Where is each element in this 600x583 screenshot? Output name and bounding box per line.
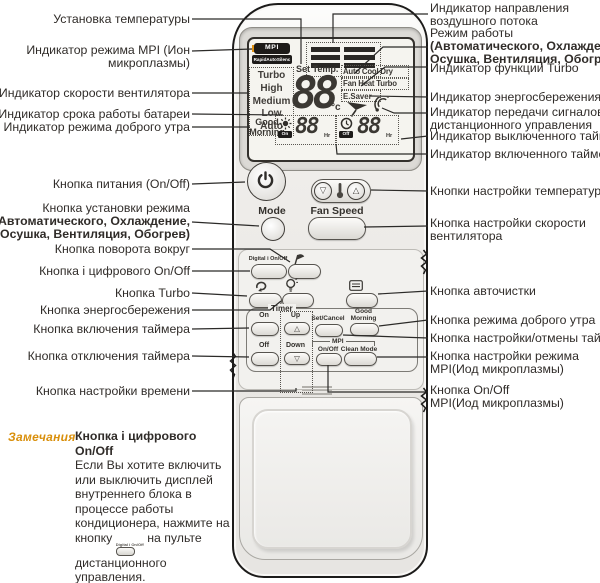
timer-off-button-label: Off (251, 342, 277, 349)
set-cancel-button[interactable] (315, 324, 343, 337)
timer-off-value: 88 (357, 116, 380, 138)
mode-button-label: Mode (252, 205, 292, 217)
mpi-onoff-button[interactable] (316, 353, 342, 366)
callout-mode-button: Кнопка установки режима(Автоматического,… (0, 202, 190, 241)
callout-digital-i-button: Кнопка i цифрового On/Off (39, 265, 190, 278)
note-title: Кнопка i цифрового On/Off (75, 429, 233, 458)
callout-energy-saver-button: Кнопка энергосбережения (40, 304, 190, 317)
callout-turbo-indicator: Индикатор функции Turbo (430, 62, 579, 75)
timer-on-button[interactable] (251, 322, 279, 336)
manual-diagram-page: MPI RapidAutoSilenc Turbo High Medium Lo… (0, 0, 600, 583)
set-cancel-button-label: Set/Cancel (309, 315, 347, 322)
mpi-indicator-badge: MPI (254, 43, 290, 54)
clean-mode-button[interactable] (344, 352, 377, 366)
temp-down-icon: ▽ (315, 185, 331, 196)
callout-set-temperature: Установка температуры (53, 13, 190, 26)
turbo-icon (255, 280, 268, 293)
timer-on-badge: On (278, 131, 292, 138)
callout-set-cancel-button: Кнопка настройки/отмены таймера (430, 332, 600, 345)
timer-up-button-label: Up (283, 312, 308, 319)
timer-on-value: 88 (295, 116, 318, 138)
fan-speed-button-label: Fan Speed (308, 205, 366, 217)
callout-mpi-clean-mode-button: Кнопка настройки режимаMPI(Иод микроплаз… (430, 350, 579, 376)
callout-swing-button: Кнопка поворота вокруг (55, 243, 190, 256)
mode-indicator-row: Auto Cool Dry (343, 67, 409, 76)
fan-speed-indicator: Turbo (250, 70, 293, 83)
mpi-group-label: MPI (330, 338, 346, 345)
callout-airflow-indicator: Индикатор направлениявоздушного потока (430, 2, 569, 28)
thermometer-icon (336, 182, 344, 199)
callout-auto-clean-button: Кнопка авточистки (430, 285, 536, 298)
battery-life-icon (279, 117, 292, 130)
digital-i-onoff-button[interactable] (251, 264, 287, 279)
timer-clock-icon (340, 117, 353, 130)
temp-up-button[interactable]: △ (347, 182, 365, 200)
good-morning-button-line1: Good (347, 308, 380, 315)
down-triangle-icon: ▽ (285, 354, 309, 363)
temperature-unit: °c (331, 102, 341, 113)
mode-indicator-box: Auto Cool Dry (341, 65, 409, 78)
timer-off-button[interactable] (251, 352, 279, 366)
callout-mpi-indicator: Индикатор режима MPI (Ионмикроплазмы) (26, 44, 190, 70)
callout-timer-off-button: Кнопка отключения таймера (28, 350, 190, 363)
auto-clean-icon (349, 280, 363, 291)
note-inline-button: Digital i On/Off (116, 543, 144, 556)
fan-speed-indicator: High (250, 83, 293, 96)
timer-on-unit: Hr (324, 133, 330, 139)
auto-clean-button[interactable] (346, 293, 378, 308)
callout-good-morning-button: Кнопка режима доброго утра (430, 314, 595, 327)
temp-down-button[interactable]: ▽ (314, 182, 332, 200)
mode-button[interactable] (261, 217, 285, 241)
turbo-indicator-row: Fan Heat Turbo (343, 79, 409, 88)
turbo-indicator-box: Fan Heat Turbo (341, 78, 409, 91)
temperature-value: 88 (291, 74, 334, 114)
airflow-bar (344, 47, 375, 52)
timer-down-button[interactable]: ▽ (284, 352, 310, 365)
timer-off-unit: Hr (386, 133, 392, 139)
digital-i-onoff-mini-label: Digital i On/Off (116, 543, 144, 547)
rapid-auto-silence-badge: RapidAutoSilenc (252, 55, 292, 64)
timer-off-badge: Off (339, 131, 353, 138)
up-triangle-icon: △ (285, 324, 309, 333)
digital-i-onoff-mini-pill (116, 547, 135, 556)
callout-good-morning-indicator: Индикатор режима доброго утра (4, 121, 191, 134)
callout-timer-off-indicator: Индикатор выключенного таймера (430, 130, 600, 143)
good-morning-button[interactable] (350, 323, 379, 336)
power-button[interactable] (247, 162, 286, 201)
callout-energy-saver-indicator: Индикатор энергосбережения (430, 91, 600, 104)
timer-up-button[interactable]: △ (284, 322, 310, 335)
callout-timer-on-indicator: Индикатор включенного таймера (430, 148, 600, 161)
callout-mpi-onoff-button: Кнопка On/OffMPI(Иод микроплазмы) (430, 384, 564, 410)
timer-down-button-label: Down (282, 342, 309, 349)
callout-fan-speed-button: Кнопка настройки скоростивентилятора (430, 217, 586, 243)
digital-i-onoff-label: Digital i On/Off (246, 256, 290, 262)
callout-time-set-button: Кнопка настройки времени (36, 385, 190, 398)
power-icon (256, 171, 275, 190)
cover-grip-line (302, 393, 332, 395)
callout-temperature-buttons: Кнопки настройки температуры (430, 185, 600, 198)
callout-timer-on-button: Кнопка включения таймера (33, 323, 190, 336)
airflow-bar (311, 55, 340, 60)
remote-signal-icon (373, 97, 389, 113)
slide-cover-ridge (252, 409, 412, 549)
good-morning-button-label: Good Morning (347, 308, 380, 322)
fan-speed-indicator: Medium (250, 96, 293, 109)
fan-speed-button[interactable] (308, 217, 366, 240)
temp-up-icon: △ (348, 185, 364, 196)
good-morning-button-line2: Morning (347, 315, 380, 322)
note-text: Кнопка i цифрового On/Off Если Вы хотите… (75, 429, 233, 583)
timer-on-button-label: On (251, 312, 277, 319)
callout-fan-speed-indicator: Индикатор скорости вентилятора (0, 87, 190, 100)
airflow-bar (311, 47, 340, 52)
note-heading: Замечания (8, 430, 76, 445)
energy-saver-icon (285, 278, 298, 293)
cover-grip-line (302, 397, 332, 399)
airflow-bar (344, 55, 375, 60)
callout-power-button: Кнопка питания (On/Off) (53, 178, 190, 191)
swing-button[interactable] (288, 264, 321, 279)
callout-turbo-button: Кнопка Turbo (115, 287, 190, 300)
